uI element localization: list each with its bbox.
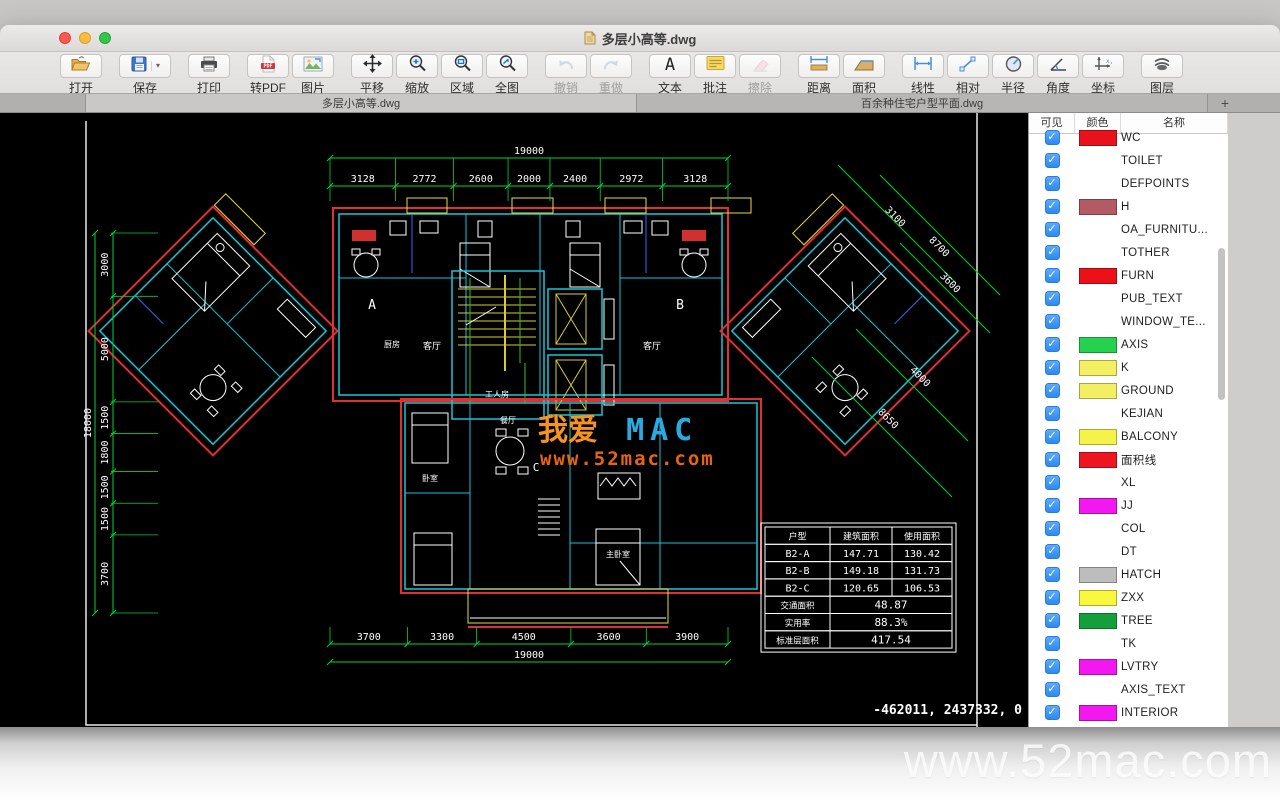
layer-row: ✓TOILET (1029, 149, 1228, 172)
layer-name[interactable]: FURN (1121, 270, 1228, 282)
minimize-window-button[interactable] (79, 32, 91, 44)
layer-row: ✓KEJIAN (1029, 402, 1228, 425)
layer-row: ✓TREE (1029, 609, 1228, 632)
toolbar-button-erase[interactable]: 擦除 (739, 54, 781, 96)
toolbar-button-undo[interactable]: 撤销 (545, 54, 587, 96)
toolbar-group: 线性相对半径角度x,y坐标 (902, 54, 1124, 96)
svg-text:3600: 3600 (937, 271, 962, 296)
text-icon: A (661, 55, 679, 78)
toolbar-button-save[interactable]: ▾保存 (119, 54, 171, 96)
svg-text:4500: 4500 (512, 632, 536, 643)
redo-icon (601, 56, 621, 77)
svg-text:实用率: 实用率 (785, 618, 811, 629)
svg-text:B2-B: B2-B (785, 566, 809, 577)
layer-row: ✓JJ (1029, 494, 1228, 517)
layer-name[interactable]: TOILET (1121, 155, 1228, 167)
svg-text:1500: 1500 (100, 507, 111, 531)
layer-visibility-checkbox[interactable]: ✓ (1045, 544, 1060, 559)
floor-plan-central-block (333, 198, 751, 401)
layer-name[interactable]: OA_FURNITU... (1121, 224, 1228, 236)
status-coordinates: -462011, 2437332, 0 (873, 703, 1022, 718)
layer-name[interactable]: TK (1121, 638, 1228, 650)
layer-color-swatch[interactable] (1079, 222, 1117, 238)
svg-text:2000: 2000 (517, 174, 541, 185)
coordinate-icon: x,y (1093, 55, 1113, 78)
generated-dimensions: 1900031282772260020002400297231283700330… (83, 146, 731, 665)
layer-visibility-checkbox[interactable]: ✓ (1045, 521, 1060, 536)
layer-color-swatch[interactable] (1079, 705, 1117, 721)
svg-text:2972: 2972 (619, 174, 643, 185)
svg-text:3600: 3600 (597, 632, 621, 643)
room-label: 厨房 (384, 339, 400, 349)
layer-color-swatch[interactable] (1079, 245, 1117, 261)
toolbar-button-image[interactable]: 图片 (292, 54, 334, 96)
svg-text:1500: 1500 (100, 475, 111, 499)
svg-text:3700: 3700 (100, 562, 111, 586)
toolbar-button-linear[interactable]: 线性 (902, 54, 944, 96)
toolbar-group: 撤销重做 (545, 54, 632, 96)
layer-color-swatch[interactable] (1079, 636, 1117, 652)
floor-plan-right-wing (708, 194, 970, 456)
layer-name[interactable]: KEJIAN (1121, 408, 1228, 420)
svg-text:我爱 MAC: 我爱 MAC (538, 413, 698, 448)
layers-icon (1152, 55, 1172, 77)
layer-visibility-checkbox[interactable]: ✓ (1045, 291, 1060, 306)
area-table: 户型建筑面积使用面积B2-A147.71130.42B2-B149.18131.… (761, 523, 956, 652)
zoom-region-icon (453, 54, 472, 78)
layer-visibility-checkbox[interactable]: ✓ (1045, 682, 1060, 697)
layer-color-swatch[interactable] (1079, 590, 1117, 606)
zoom-fit-icon (498, 54, 517, 78)
svg-text:B2-A: B2-A (785, 549, 809, 560)
svg-text:3000: 3000 (100, 253, 111, 277)
layer-row: ✓AXIS (1029, 333, 1228, 356)
layer-visibility-checkbox[interactable]: ✓ (1045, 452, 1060, 467)
svg-text:x,y: x,y (1106, 58, 1113, 65)
layer-name[interactable]: WINDOW_TE... (1121, 316, 1228, 328)
layer-visibility-checkbox[interactable]: ✓ (1045, 360, 1060, 375)
note-icon (706, 55, 725, 77)
room-label: 客厅 (643, 340, 661, 352)
app-window: 多层小高等.dwg 打开▾保存打印PDF转PDF图片平移缩放区域全图撤销重做A文… (0, 25, 1280, 800)
layer-row: ✓面积线 (1029, 448, 1228, 471)
layer-color-swatch[interactable] (1079, 268, 1117, 284)
footer-watermark: www.52mac.com (904, 733, 1272, 788)
layer-row: ✓H (1029, 195, 1228, 218)
layer-name[interactable]: TOTHER (1121, 247, 1228, 259)
relative-icon (958, 55, 978, 77)
angle-icon (1048, 55, 1068, 77)
room-label: 餐厅 (500, 416, 516, 425)
layer-row: ✓BALCONY (1029, 425, 1228, 448)
close-window-button[interactable] (59, 32, 71, 44)
eraser-icon (750, 55, 770, 77)
layer-color-swatch[interactable] (1079, 682, 1117, 698)
layer-visibility-checkbox[interactable]: ✓ (1045, 636, 1060, 651)
toolbar-button-zoom-region[interactable]: 区域 (441, 54, 483, 96)
svg-text:88.3%: 88.3% (874, 616, 907, 629)
layer-color-swatch[interactable] (1079, 199, 1117, 215)
save-icon (130, 55, 148, 78)
room-label: C (533, 461, 540, 474)
toolbar-button-zoom-all[interactable]: 全图 (486, 54, 528, 96)
svg-text:18000: 18000 (83, 408, 94, 438)
layer-visibility-checkbox[interactable]: ✓ (1045, 406, 1060, 421)
layer-row: ✓DEFPOINTS (1029, 172, 1228, 195)
layer-panel: 可见 颜色 名称 ✓WC✓TOILET✓DEFPOINTS✓H✓OA_FURNI… (1028, 113, 1228, 727)
window-background-strip (1228, 113, 1280, 727)
layer-color-swatch[interactable] (1079, 613, 1117, 629)
layer-name[interactable]: AXIS (1121, 339, 1228, 351)
layer-visibility-checkbox[interactable]: ✓ (1045, 268, 1060, 283)
toolbar-group: PDF转PDF图片 (247, 54, 334, 96)
toolbar-button-angle[interactable]: 角度 (1037, 54, 1079, 96)
svg-text:48.87: 48.87 (874, 599, 907, 612)
layer-color-swatch[interactable] (1079, 130, 1117, 146)
layer-color-swatch[interactable] (1079, 475, 1117, 491)
room-label: 卧室 (422, 473, 438, 483)
layer-row: ✓DT (1029, 540, 1228, 563)
toolbar-button-note[interactable]: 批注 (694, 54, 736, 96)
floor-plan-drawing: 3100 8700 3600 4000 8650 190003128277226… (0, 113, 1028, 727)
svg-text:使用面积: 使用面积 (904, 531, 940, 543)
layer-visibility-checkbox[interactable]: ✓ (1045, 705, 1060, 720)
svg-text:2772: 2772 (413, 174, 437, 185)
layer-row: ✓PUB_TEXT (1029, 287, 1228, 310)
layer-color-swatch[interactable] (1079, 360, 1117, 376)
layer-color-swatch[interactable] (1079, 659, 1117, 675)
layer-color-swatch[interactable] (1079, 383, 1117, 399)
toolbar-button-print[interactable]: 打印 (188, 54, 230, 96)
column-name: 名称 (1121, 113, 1228, 133)
tab-bar: 多层小高等.dwg百余种住宅户型平面.dwg+ (0, 94, 1280, 113)
pan-icon (363, 54, 382, 78)
linear-icon (912, 55, 934, 77)
layer-name[interactable]: HATCH (1121, 569, 1228, 581)
svg-text:3700: 3700 (357, 632, 381, 643)
svg-text:120.65: 120.65 (843, 583, 879, 594)
layer-visibility-checkbox[interactable]: ✓ (1045, 475, 1060, 490)
layer-row: ✓FURN (1029, 264, 1228, 287)
toolbar-group: 打开 (60, 54, 102, 96)
layer-row: ✓XL (1029, 471, 1228, 494)
layer-name[interactable]: GROUND (1121, 385, 1228, 397)
toolbar: 打开▾保存打印PDF转PDF图片平移缩放区域全图撤销重做A文本批注擦除距离面积线… (0, 52, 1280, 94)
svg-text:B2-C: B2-C (785, 583, 809, 594)
tab-bar-spacer (0, 94, 86, 112)
layer-row: ✓OA_FURNITU... (1029, 218, 1228, 241)
layer-color-swatch[interactable] (1079, 521, 1117, 537)
svg-text:5000: 5000 (100, 337, 111, 361)
layer-visibility-checkbox[interactable]: ✓ (1045, 130, 1060, 145)
printer-icon (199, 55, 219, 78)
layer-color-swatch[interactable] (1079, 452, 1117, 468)
layer-row: ✓LVTRY (1029, 655, 1228, 678)
zoom-window-button[interactable] (99, 32, 111, 44)
layer-color-swatch[interactable] (1079, 291, 1117, 307)
layer-panel-scrollbar[interactable] (1218, 248, 1225, 400)
svg-text:3128: 3128 (351, 174, 375, 185)
layer-name[interactable]: DEFPOINTS (1121, 178, 1228, 190)
layer-visibility-checkbox[interactable]: ✓ (1045, 176, 1060, 191)
layer-name[interactable]: LVTRY (1121, 661, 1228, 673)
layer-name[interactable]: COL (1121, 523, 1228, 535)
layer-visibility-checkbox[interactable]: ✓ (1045, 337, 1060, 352)
layer-name[interactable]: K (1121, 362, 1228, 374)
layer-row: ✓AXIS_TEXT (1029, 678, 1228, 701)
layer-row: ✓ZXX (1029, 586, 1228, 609)
layer-color-swatch[interactable] (1079, 176, 1117, 192)
dropdown-chevron-icon[interactable]: ▾ (151, 61, 160, 71)
layer-row: ✓TK (1029, 632, 1228, 655)
svg-text:1500: 1500 (100, 406, 111, 430)
cad-canvas[interactable]: 3100 8700 3600 4000 8650 190003128277226… (0, 113, 1028, 727)
svg-text:www.52mac.com: www.52mac.com (540, 448, 715, 470)
svg-text:交通面积: 交通面积 (780, 601, 815, 612)
toolbar-group: 距离面积 (798, 54, 885, 96)
room-label: B (676, 298, 684, 313)
layer-row: ✓TOTHER (1029, 241, 1228, 264)
toolbar-group: A文本批注擦除 (649, 54, 781, 96)
pdf-icon: PDF (259, 55, 277, 78)
layer-color-swatch[interactable] (1079, 153, 1117, 169)
svg-text:3128: 3128 (683, 174, 707, 185)
toolbar-button-distance[interactable]: 距离 (798, 54, 840, 96)
undo-icon (556, 56, 576, 77)
svg-text:建筑面积: 建筑面积 (843, 531, 879, 543)
layer-row: ✓K (1029, 356, 1228, 379)
layer-color-swatch[interactable] (1079, 429, 1117, 445)
layer-name[interactable]: DT (1121, 546, 1228, 558)
document-tab-1[interactable]: 多层小高等.dwg (86, 94, 637, 112)
layer-name[interactable]: WC (1121, 132, 1228, 144)
toolbar-button-layers[interactable]: 图层 (1141, 54, 1183, 96)
area-icon (853, 55, 875, 77)
layer-visibility-checkbox[interactable]: ✓ (1045, 659, 1060, 674)
layer-row: ✓WINDOW_TE... (1029, 310, 1228, 333)
layer-visibility-checkbox[interactable]: ✓ (1045, 613, 1060, 628)
layer-name[interactable]: 面积线 (1121, 452, 1228, 468)
right-dimension-labels: 3100 8700 3600 4000 8650 (875, 205, 962, 432)
toolbar-button-redo[interactable]: 重做 (590, 54, 632, 96)
svg-text:3300: 3300 (430, 632, 454, 643)
stair-elevator-core (452, 271, 614, 419)
toolbar-button-coordinate[interactable]: x,y坐标 (1082, 54, 1124, 96)
toolbar-group: 打印 (188, 54, 230, 96)
svg-text:标准层面积: 标准层面积 (776, 635, 819, 646)
svg-text:A: A (665, 55, 675, 73)
document-tab-2[interactable]: 百余种住宅户型平面.dwg (637, 94, 1208, 112)
layer-row: ✓GROUND (1029, 379, 1228, 402)
svg-text:131.73: 131.73 (904, 566, 940, 577)
svg-text:149.18: 149.18 (843, 566, 879, 577)
svg-text:130.42: 130.42 (904, 549, 940, 560)
layer-color-swatch[interactable] (1079, 406, 1117, 422)
svg-text:19000: 19000 (514, 650, 544, 661)
toolbar-button-area[interactable]: 面积 (843, 54, 885, 96)
layer-visibility-checkbox[interactable]: ✓ (1045, 245, 1060, 260)
layer-color-swatch[interactable] (1079, 567, 1117, 583)
document-icon (584, 31, 596, 45)
footer-area: www.52mac.com (0, 727, 1280, 800)
zoom-in-icon (408, 54, 427, 78)
layer-color-swatch[interactable] (1079, 544, 1117, 560)
layer-visibility-checkbox[interactable]: ✓ (1045, 153, 1060, 168)
room-label: 客厅 (423, 340, 441, 352)
open-folder-icon (70, 55, 92, 78)
svg-text:417.54: 417.54 (871, 633, 911, 646)
toolbar-button-relative[interactable]: 相对 (947, 54, 989, 96)
layer-row: ✓HATCH (1029, 563, 1228, 586)
canvas-watermark: 我爱 MAC www.52mac.com (538, 413, 715, 470)
room-label: 主卧室 (606, 549, 630, 559)
layer-name[interactable]: PUB_TEXT (1121, 293, 1228, 305)
toolbar-group: ▾保存 (119, 54, 171, 96)
radius-icon (1004, 54, 1023, 78)
layer-name[interactable]: XL (1121, 477, 1228, 489)
new-tab-button[interactable]: + (1208, 94, 1242, 112)
layer-name[interactable]: INTERIOR (1121, 707, 1228, 719)
layer-color-swatch[interactable] (1079, 337, 1117, 353)
layer-row: ✓INTERIOR (1029, 701, 1228, 724)
svg-text:3100: 3100 (882, 205, 907, 230)
layer-visibility-checkbox[interactable]: ✓ (1045, 314, 1060, 329)
svg-text:106.53: 106.53 (904, 583, 940, 594)
distance-icon (808, 55, 830, 77)
toolbar-button-open[interactable]: 打开 (60, 54, 102, 96)
layer-name[interactable]: AXIS_TEXT (1121, 684, 1228, 696)
title-bar: 多层小高等.dwg (0, 25, 1280, 52)
toolbar-button-to-pdf[interactable]: PDF转PDF (247, 54, 289, 96)
layer-visibility-checkbox[interactable]: ✓ (1045, 199, 1060, 214)
layer-visibility-checkbox[interactable]: ✓ (1045, 222, 1060, 237)
layer-name[interactable]: ZXX (1121, 592, 1228, 604)
layer-name[interactable]: TREE (1121, 615, 1228, 627)
svg-text:2600: 2600 (469, 174, 493, 185)
svg-text:19000: 19000 (514, 146, 544, 157)
layer-name[interactable]: JJ (1121, 500, 1228, 512)
image-icon (303, 56, 323, 77)
layer-visibility-checkbox[interactable]: ✓ (1045, 429, 1060, 444)
layer-visibility-checkbox[interactable]: ✓ (1045, 590, 1060, 605)
svg-text:户型: 户型 (788, 531, 806, 543)
svg-text:147.71: 147.71 (843, 549, 879, 560)
layer-visibility-checkbox[interactable]: ✓ (1045, 383, 1060, 398)
svg-text:2400: 2400 (563, 174, 587, 185)
svg-text:PDF: PDF (263, 63, 272, 69)
svg-text:8650: 8650 (875, 407, 900, 432)
svg-text:3900: 3900 (675, 632, 699, 643)
right-dimensions (812, 165, 1000, 497)
layer-name[interactable]: BALCONY (1121, 431, 1228, 443)
svg-text:8700: 8700 (926, 235, 951, 260)
layer-visibility-checkbox[interactable]: ✓ (1045, 498, 1060, 513)
layer-color-swatch[interactable] (1079, 314, 1117, 330)
svg-text:1800: 1800 (100, 441, 111, 465)
toolbar-button-zoom[interactable]: 缩放 (396, 54, 438, 96)
room-label: 工人房 (485, 389, 509, 399)
toolbar-button-radius[interactable]: 半径 (992, 54, 1034, 96)
toolbar-group: 平移缩放区域全图 (351, 54, 528, 96)
room-label: A (368, 298, 376, 313)
layer-name[interactable]: H (1121, 201, 1228, 213)
toolbar-button-text[interactable]: A文本 (649, 54, 691, 96)
window-title: 多层小高等.dwg (602, 29, 697, 48)
layer-row: ✓COL (1029, 517, 1228, 540)
layer-color-swatch[interactable] (1079, 498, 1117, 514)
toolbar-group: 图层 (1141, 54, 1183, 96)
layer-visibility-checkbox[interactable]: ✓ (1045, 567, 1060, 582)
toolbar-button-pan[interactable]: 平移 (351, 54, 393, 96)
